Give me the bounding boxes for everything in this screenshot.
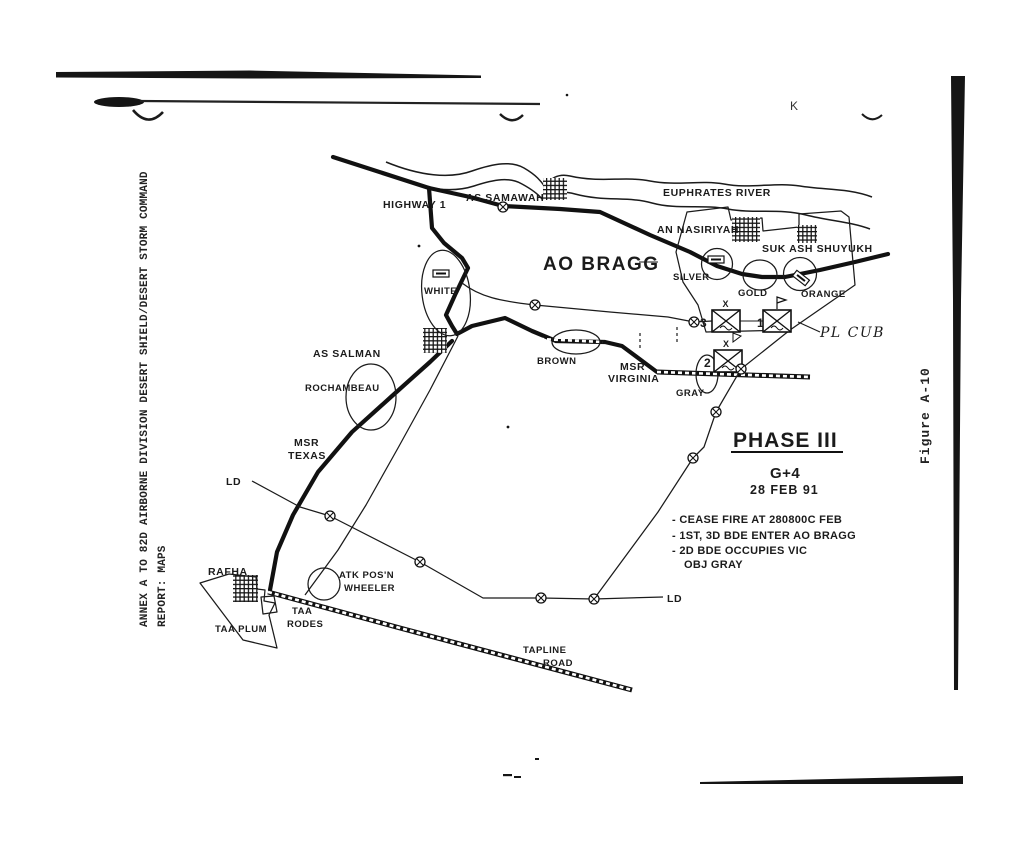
atk-posn-label-1: ATK POS'N (339, 570, 394, 581)
obj-rochambeau-label: ROCHAMBEAU (305, 383, 380, 394)
white-to-bragg-line (462, 283, 712, 322)
bde-2-number: 2 (704, 356, 711, 370)
punch-curve-icon (133, 110, 163, 120)
euphrates-river-north-line (386, 162, 872, 197)
white-unit-symbol (433, 270, 449, 277)
suk-ash-shuyukh-city-icon (797, 225, 817, 243)
taa-rodes-label-2: RODES (287, 619, 323, 630)
as-salman-label: AS SALMAN (313, 348, 381, 360)
date-label: 28 FEB 91 (750, 483, 819, 497)
obj-silver-label: SILVER (673, 272, 710, 283)
checkpoint-icon (711, 407, 721, 417)
checkpoint-icon (689, 317, 699, 327)
checkpoint-icon (415, 557, 425, 567)
west-sector-line (305, 336, 458, 595)
rafha-label: RAFHA (208, 566, 248, 578)
obj-gold-label: GOLD (738, 288, 767, 299)
highway1-nw-segment (333, 157, 429, 188)
checkpoint-icon (530, 300, 540, 310)
bde-2-echelon: X (723, 339, 729, 349)
msr-virginia-label-2: VIRGINIA (608, 373, 659, 385)
bde-3-symbol: X (712, 299, 740, 332)
ld-west-label: LD (226, 476, 241, 488)
map-figure-svg: K ANNEX A TO 82D AIRBORNE DIVISION DESER… (0, 0, 1017, 850)
checkpoint-icon (325, 511, 335, 521)
punch-curve-icon (862, 114, 882, 119)
msr-texas-road (270, 341, 452, 590)
as-samawah-city-icon (543, 178, 567, 200)
bottom-edge-line (700, 776, 963, 784)
euphrates-river-label: EUPHRATES RIVER (663, 187, 771, 199)
suk-ash-shuyukh-label: SUK ASH SHUYUKH (762, 243, 873, 255)
pl-cub-label: PL CUB (819, 325, 885, 341)
margin-annex-title: ANNEX A TO 82D AIRBORNE DIVISION DESERT … (139, 171, 151, 627)
pl-cub-leader-line (798, 322, 820, 332)
obj-orange-label: ORANGE (801, 289, 846, 300)
an-nasiriyah-label: AN NASIRIYAH (657, 224, 739, 236)
ao-bragg-label: AO BRAGG (543, 254, 660, 275)
msr-virginia-label-1: MSR (620, 361, 645, 373)
stray-k-mark: K (790, 99, 798, 113)
ld-south-line (252, 481, 663, 599)
bde-2-flag-icon (733, 333, 741, 342)
right-edge-bar (951, 76, 965, 690)
bde-3-number: 3 (700, 316, 707, 330)
margin-report-maps: REPORT: MAPS (157, 545, 169, 627)
rafha-city-icon (233, 575, 258, 602)
phase-note-1: - CEASE FIRE AT 280800C FEB (672, 514, 842, 526)
phase-note-3: - 2D BDE OCCUPIES VIC (672, 545, 807, 557)
bde-3-echelon: X (723, 299, 729, 309)
checkpoint-icon (589, 594, 599, 604)
checkpoint-icon (736, 364, 746, 374)
checkpoints (325, 202, 746, 604)
phase-note-2: - 1ST, 3D BDE ENTER AO BRAGG (672, 530, 856, 542)
as-salman-city-icon (423, 328, 447, 353)
punch-curve-icon (500, 114, 523, 120)
bde-1-flag-icon (777, 297, 786, 309)
ld-south-label: LD (667, 593, 682, 605)
tapline-label-1: TAPLINE (523, 645, 566, 656)
g-day-label: G+4 (770, 465, 800, 482)
phase-title: PHASE III (733, 429, 838, 452)
tapline-label-2: ROAD (543, 658, 573, 669)
checkpoint-icon (688, 453, 698, 463)
brigade-symbols: X X 3 1 2 (700, 297, 791, 372)
bde-1-symbol (763, 297, 791, 332)
highway1-label: HIGHWAY 1 (383, 199, 446, 211)
phase-info-block: PHASE III G+4 28 FEB 91 - CEASE FIRE AT … (672, 429, 856, 571)
msr-texas-label-1: MSR (294, 437, 319, 449)
as-samawah-label: AS SAMAWAH (466, 192, 544, 204)
map-linework (252, 157, 888, 690)
taa-rodes-label-1: TAA (292, 606, 312, 617)
checkpoint-icon (536, 593, 546, 603)
taa-plum-label: TAA PLUM (215, 624, 267, 635)
obj-white-label: WHITE (424, 286, 457, 297)
phase-note-4: OBJ GRAY (684, 559, 743, 571)
scanned-page: K ANNEX A TO 82D AIRBORNE DIVISION DESER… (0, 0, 1017, 850)
figure-caption: Figure A-10 (918, 367, 933, 464)
atk-posn-label-2: WHEELER (344, 583, 395, 594)
obj-gray-label: GRAY (676, 388, 705, 399)
scan-artifacts: K (56, 71, 965, 785)
msr-texas-label-2: TEXAS (288, 450, 326, 462)
bde-1-number: 1 (757, 316, 764, 330)
silver-unit-symbol (708, 256, 724, 263)
obj-brown-label: BROWN (537, 356, 576, 367)
